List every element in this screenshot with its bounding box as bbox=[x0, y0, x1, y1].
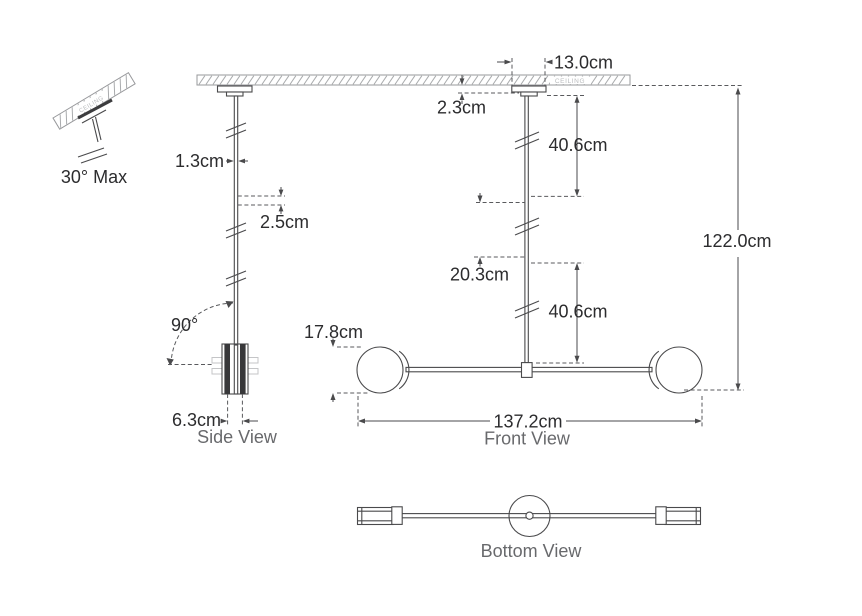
tilt-ceiling-band: CEILING bbox=[53, 73, 135, 129]
bottom-right-socket bbox=[656, 507, 701, 525]
bottom-view-label: Bottom View bbox=[481, 541, 583, 561]
side-disc bbox=[222, 344, 248, 394]
front-view-label: Front View bbox=[484, 429, 571, 449]
tilt-max-angle-label: 30° Max bbox=[61, 167, 127, 187]
front-globe-right bbox=[656, 347, 702, 393]
bottom-view: Bottom View bbox=[358, 496, 701, 562]
front-view: 13.0cm 2.3cm 40.6cm 20 bbox=[304, 53, 772, 449]
dim-overall-height: 122.0cm bbox=[684, 88, 772, 391]
ceiling-label: CEILING bbox=[555, 78, 585, 85]
front-canopy-hub bbox=[521, 92, 537, 96]
canopy-width-label: 13.0cm bbox=[554, 53, 613, 73]
overall-height-label: 122.0cm bbox=[702, 231, 771, 251]
tilt-detail: CEILING 30° Max bbox=[53, 73, 135, 187]
side-view-label: Side View bbox=[197, 427, 278, 447]
dim-middle-rod: 20.3cm bbox=[450, 193, 525, 285]
bottom-left-socket bbox=[358, 507, 403, 525]
middle-rod-label: 20.3cm bbox=[450, 265, 509, 285]
dim-joint-length: 2.5cm bbox=[238, 187, 309, 232]
side-canopy-plate bbox=[218, 86, 253, 92]
swivel-angle-label: 90° bbox=[171, 315, 198, 335]
dim-lower-rod: 40.6cm bbox=[531, 263, 608, 363]
dim-upper-rod: 40.6cm bbox=[531, 96, 608, 197]
front-globe-left bbox=[357, 347, 403, 393]
dim-disc-width: 6.3cm bbox=[172, 394, 258, 430]
joint-length-label: 2.5cm bbox=[260, 212, 309, 232]
side-view: 1.3cm 2.5cm 90° bbox=[167, 86, 310, 447]
upper-rod-label: 40.6cm bbox=[549, 135, 608, 155]
dim-overall-width: 137.2cm bbox=[358, 396, 702, 432]
fixture-dimension-diagram: CEILING 30° Max CEILING bbox=[0, 0, 862, 616]
front-connector bbox=[522, 363, 533, 378]
ceiling: CEILING bbox=[197, 75, 744, 86]
canopy-height-label: 2.3cm bbox=[437, 98, 486, 118]
bottom-stem-circle bbox=[526, 512, 533, 519]
drawing-canvas: CEILING 30° Max CEILING bbox=[0, 0, 862, 616]
rod-diameter-label: 1.3cm bbox=[175, 151, 224, 171]
lower-rod-label: 40.6cm bbox=[549, 302, 608, 322]
side-canopy-hub bbox=[227, 92, 244, 96]
front-canopy-plate bbox=[512, 86, 546, 92]
shade-diameter-label: 17.8cm bbox=[304, 322, 363, 342]
